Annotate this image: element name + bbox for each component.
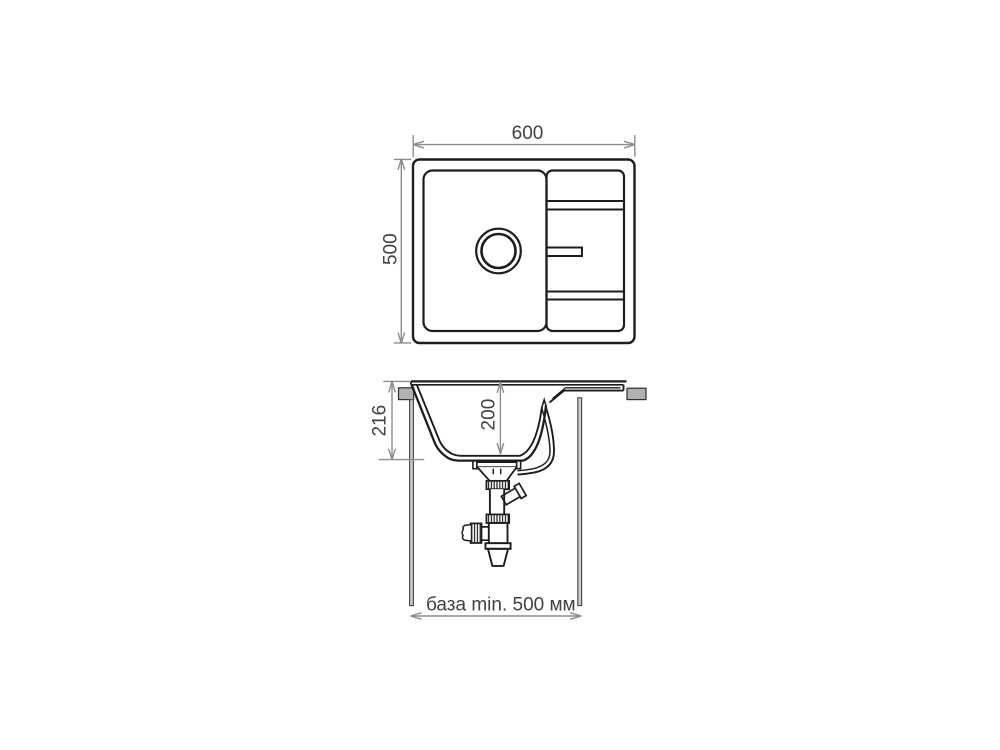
depth-dimension-label: 500 — [380, 233, 401, 265]
waste-outlet-nut — [471, 523, 482, 543]
drainboard-ridge-bottom — [548, 292, 624, 300]
height-dimension-label: 216 — [370, 405, 391, 437]
drain-outer-circle — [476, 229, 521, 274]
top-view-drainboard — [547, 171, 625, 332]
drain-nut-lower — [486, 514, 509, 523]
side-view — [399, 381, 647, 605]
side-wall-tip — [542, 400, 546, 407]
bowl-depth-dimension: 200 — [478, 382, 503, 454]
siphon-body — [489, 523, 508, 543]
countertop-right — [627, 388, 646, 399]
drain-flange — [477, 462, 517, 467]
width-dimension: 600 — [413, 123, 635, 157]
top-view-outline — [413, 160, 635, 344]
waste-outlet-broken-end — [462, 525, 471, 541]
width-dimension-label: 600 — [512, 123, 544, 144]
countertop-left — [399, 388, 414, 400]
sink-dimension-diagram: 600 500 — [0, 0, 1000, 750]
drainboard-slot — [547, 248, 583, 257]
top-view-bowl — [424, 171, 547, 332]
drainboard-ridge-top — [548, 201, 624, 210]
base-dimension: база min. 500 мм — [411, 595, 582, 620]
sink-dimension-drawing: 600 500 — [0, 0, 1000, 750]
drain-inner-circle — [482, 234, 516, 268]
siphon-cup — [488, 549, 508, 566]
tailpipe-fill — [490, 489, 504, 514]
cabinet-wall-right — [578, 398, 582, 606]
side-drainboard-underside-inner — [553, 388, 621, 399]
bowl-depth-dimension-label: 200 — [478, 399, 499, 431]
base-dimension-label: база min. 500 мм — [426, 595, 576, 616]
drain-nut-upper — [486, 481, 509, 489]
top-view — [413, 160, 635, 344]
depth-dimension: 500 — [380, 159, 411, 344]
drain-assembly — [462, 461, 526, 566]
cabinet-wall-left — [410, 400, 414, 606]
